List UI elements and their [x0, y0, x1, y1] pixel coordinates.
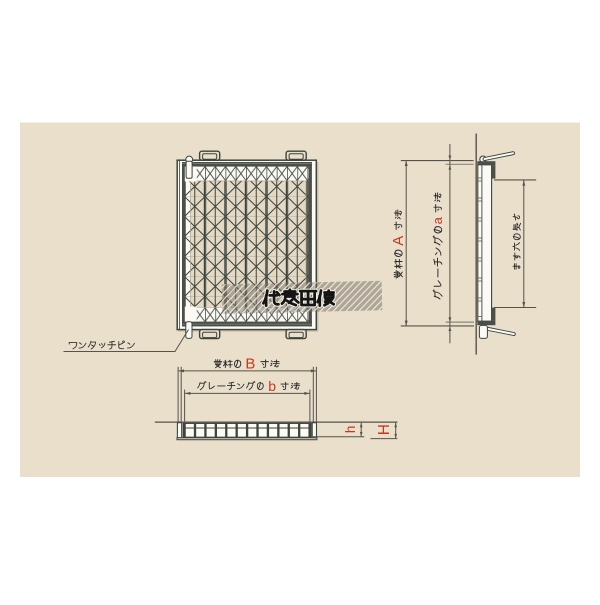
svg-text:b: b — [268, 378, 276, 394]
svg-text:h: h — [343, 426, 358, 434]
svg-text:A: A — [390, 236, 407, 246]
svg-text:B: B — [245, 356, 255, 373]
svg-text:a: a — [430, 216, 445, 224]
svg-text:H: H — [376, 424, 393, 435]
